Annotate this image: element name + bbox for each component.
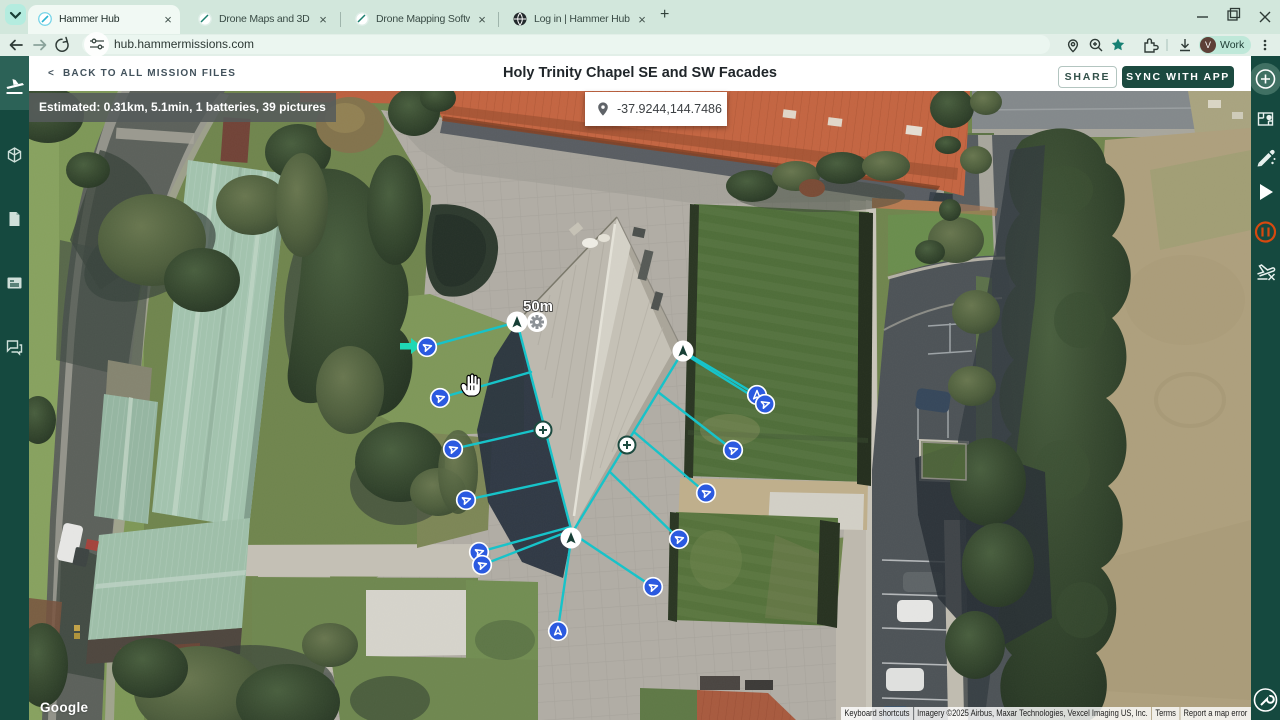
svg-text:50m: 50m [523,298,553,315]
